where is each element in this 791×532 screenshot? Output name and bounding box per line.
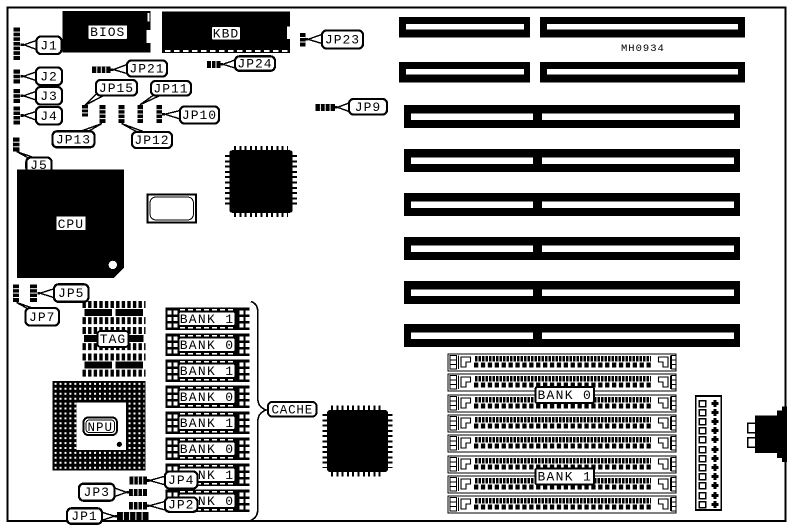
svg-text:TAG: TAG [100,332,126,347]
svg-text:JP23: JP23 [325,33,360,48]
svg-text:JP9: JP9 [355,100,381,115]
svg-text:JP12: JP12 [134,133,169,148]
svg-text:BANK 1: BANK 1 [180,364,235,379]
svg-text:BANK 0: BANK 0 [180,442,235,457]
svg-text:JP15: JP15 [99,81,134,96]
svg-text:JP13: JP13 [56,132,91,147]
svg-text:J1: J1 [40,38,58,53]
svg-text:JP24: JP24 [237,57,272,72]
svg-text:MH0934: MH0934 [621,43,665,55]
svg-text:BIOS: BIOS [90,25,125,40]
svg-text:JP10: JP10 [182,108,217,123]
svg-text:BANK 1: BANK 1 [180,312,235,327]
svg-text:JP7: JP7 [29,310,55,325]
svg-text:CACHE: CACHE [271,403,313,417]
svg-text:JP1: JP1 [71,509,97,524]
svg-text:JP2: JP2 [168,498,194,513]
svg-text:BANK 1: BANK 1 [180,416,235,431]
svg-text:JP4: JP4 [168,473,194,488]
svg-text:JP5: JP5 [58,286,84,301]
svg-text:J3: J3 [40,89,58,104]
svg-text:JP21: JP21 [129,62,164,77]
svg-text:JP3: JP3 [84,485,110,500]
svg-text:KBD: KBD [213,26,239,41]
svg-text:BANK 0: BANK 0 [180,338,235,353]
svg-text:JP11: JP11 [153,81,188,96]
svg-text:NPU: NPU [87,421,113,435]
svg-text:BANK 1: BANK 1 [537,470,592,485]
svg-text:CPU: CPU [58,217,84,232]
svg-text:J4: J4 [40,109,58,124]
svg-text:J2: J2 [40,69,58,84]
svg-text:BANK 0: BANK 0 [537,388,592,403]
svg-text:BANK 0: BANK 0 [180,390,235,405]
